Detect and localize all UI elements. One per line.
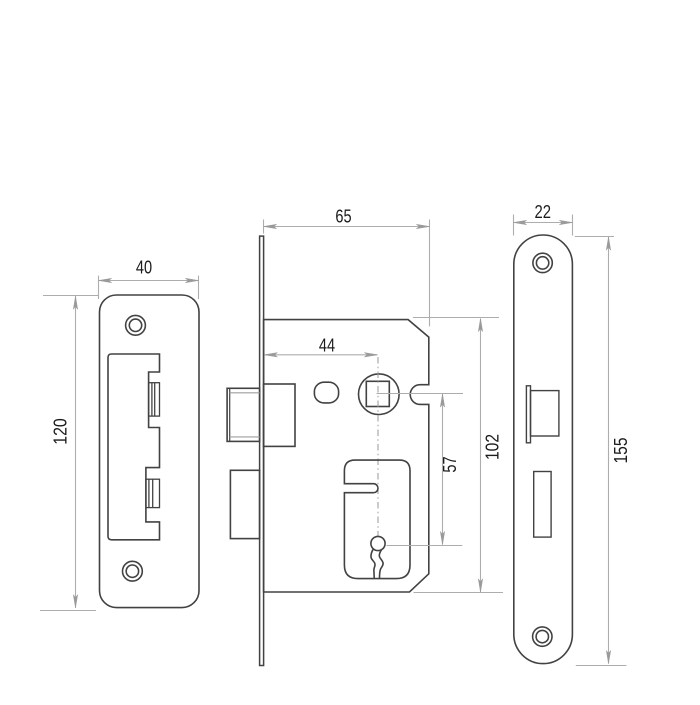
svg-text:57: 57 <box>439 456 460 472</box>
svg-text:120: 120 <box>50 418 71 445</box>
svg-text:44: 44 <box>319 335 335 356</box>
svg-text:22: 22 <box>535 201 552 222</box>
svg-text:102: 102 <box>482 434 503 460</box>
svg-text:40: 40 <box>136 257 152 278</box>
svg-text:65: 65 <box>335 206 351 227</box>
svg-text:155: 155 <box>610 438 631 464</box>
